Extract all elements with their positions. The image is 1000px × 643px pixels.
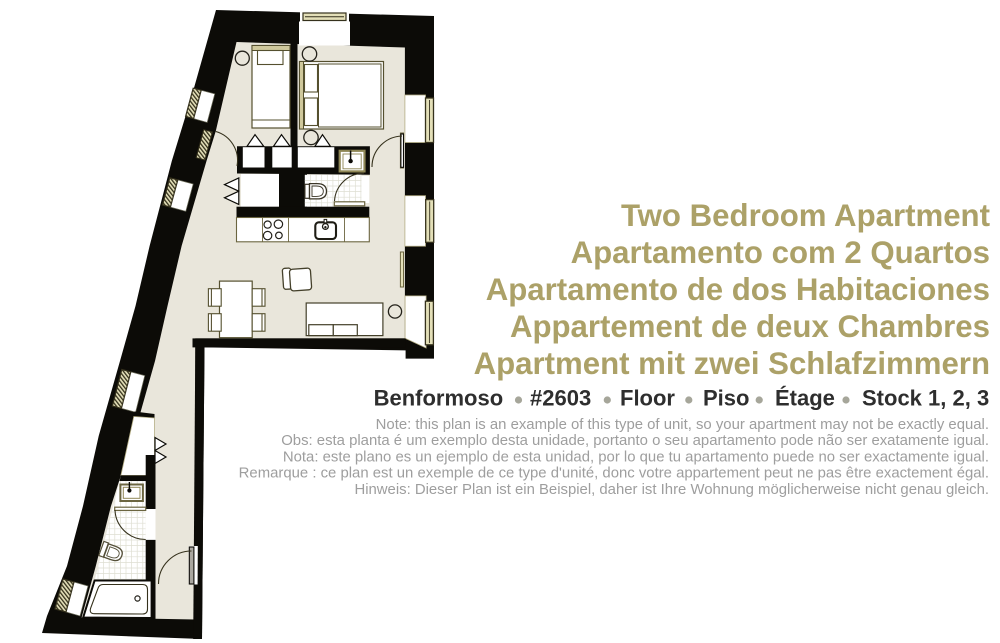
svg-text:Obs: esta planta é um exemplo: Obs: esta planta é um exemplo desta unid… <box>281 433 989 449</box>
svg-text:Remarque : ce plan est un exem: Remarque : ce plan est un exemple de ce … <box>239 466 989 482</box>
svg-text:Floor: Floor <box>620 385 675 410</box>
svg-text:Étage: Étage <box>775 385 835 410</box>
svg-text:Benformoso: Benformoso <box>374 385 504 410</box>
svg-text:#2603: #2603 <box>530 385 591 410</box>
svg-text:Two Bedroom Apartment: Two Bedroom Apartment <box>621 198 990 233</box>
svg-text:Note: this plan is an example: Note: this plan is an example of this ty… <box>376 417 989 433</box>
svg-text:Appartement de deux Chambres: Appartement de deux Chambres <box>510 309 990 344</box>
svg-text:Nota: este plano es un ejemplo: Nota: este plano es un ejemplo de esta u… <box>283 449 989 465</box>
svg-text:Apartamento com 2 Quartos: Apartamento com 2 Quartos <box>571 235 990 270</box>
svg-text:Apartment mit zwei Schlafzimme: Apartment mit zwei Schlafzimmern <box>474 346 990 381</box>
svg-text:Hinweis: Dieser Plan ist ein B: Hinweis: Dieser Plan ist ein Beispiel, d… <box>354 482 989 498</box>
svg-text:Apartamento de dos Habitacione: Apartamento de dos Habitaciones <box>486 272 990 307</box>
svg-text:Stock 1, 2, 3: Stock 1, 2, 3 <box>862 385 989 410</box>
svg-text:Piso: Piso <box>703 385 749 410</box>
